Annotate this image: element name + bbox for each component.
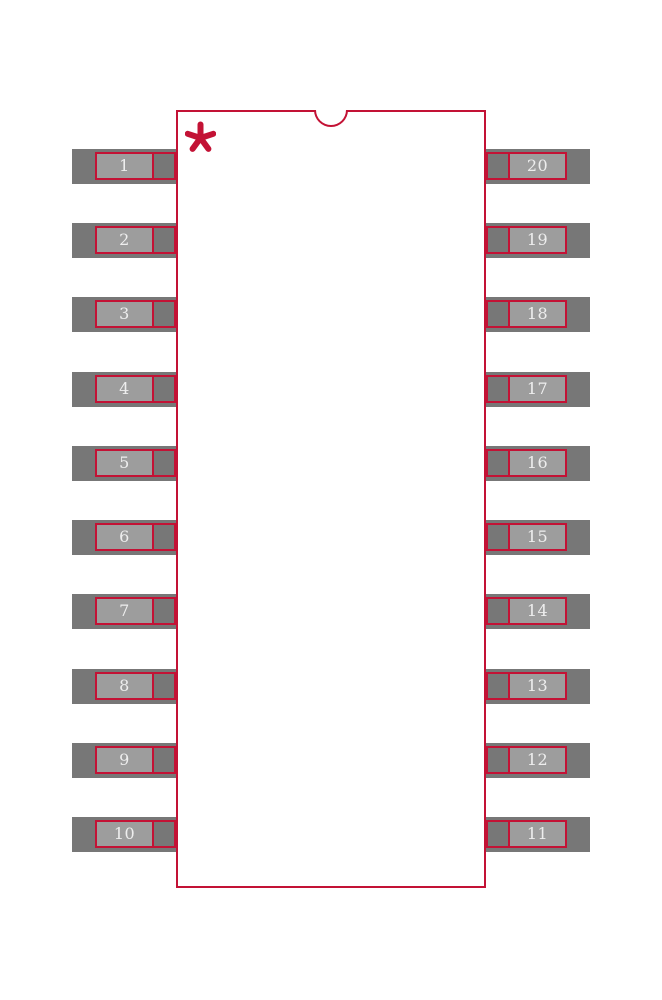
pin-number-label: 1 [97, 154, 152, 178]
component-body-outline [176, 110, 486, 888]
pin-number-label: 10 [97, 822, 152, 846]
pin-number-label: 5 [97, 451, 152, 475]
pin-number-label: 7 [97, 599, 152, 623]
pin-lead-contact-left-7: 7 [95, 597, 154, 625]
pin-number-label: 4 [97, 377, 152, 401]
pin-number-label: 16 [510, 451, 565, 475]
pin-number-label: 6 [97, 525, 152, 549]
pin-lead-contact-right-19: 19 [508, 226, 567, 254]
pin-lead-contact-left-5: 5 [95, 449, 154, 477]
pin-lead-contact-left-8: 8 [95, 672, 154, 700]
footprint-canvas: 1234567891020191817161514131211 [0, 0, 662, 1000]
pin-number-label: 17 [510, 377, 565, 401]
pin-lead-contact-left-1: 1 [95, 152, 154, 180]
pin-lead-contact-left-6: 6 [95, 523, 154, 551]
pin-lead-contact-right-17: 17 [508, 375, 567, 403]
pin-number-label: 20 [510, 154, 565, 178]
pin-number-label: 13 [510, 674, 565, 698]
pin-lead-contact-right-11: 11 [508, 820, 567, 848]
pin-lead-contact-right-15: 15 [508, 523, 567, 551]
pin-lead-contact-left-4: 4 [95, 375, 154, 403]
pin-lead-contact-left-9: 9 [95, 746, 154, 774]
pin-number-label: 8 [97, 674, 152, 698]
asterisk-icon [188, 125, 214, 149]
pin-number-label: 12 [510, 748, 565, 772]
pin-lead-contact-left-10: 10 [95, 820, 154, 848]
pin-lead-contact-right-16: 16 [508, 449, 567, 477]
pin-number-label: 14 [510, 599, 565, 623]
pin-lead-contact-right-18: 18 [508, 300, 567, 328]
pin-number-label: 2 [97, 228, 152, 252]
pin-number-label: 15 [510, 525, 565, 549]
pin-lead-contact-right-13: 13 [508, 672, 567, 700]
pin-number-label: 11 [510, 822, 565, 846]
pin-number-label: 19 [510, 228, 565, 252]
pin-lead-contact-left-2: 2 [95, 226, 154, 254]
pin-number-label: 3 [97, 302, 152, 326]
pin-lead-contact-right-12: 12 [508, 746, 567, 774]
pin-number-label: 9 [97, 748, 152, 772]
pin-lead-contact-right-14: 14 [508, 597, 567, 625]
pin-lead-contact-right-20: 20 [508, 152, 567, 180]
pin1-marker-asterisk [185, 121, 216, 153]
pin-lead-contact-left-3: 3 [95, 300, 154, 328]
pin-number-label: 18 [510, 302, 565, 326]
